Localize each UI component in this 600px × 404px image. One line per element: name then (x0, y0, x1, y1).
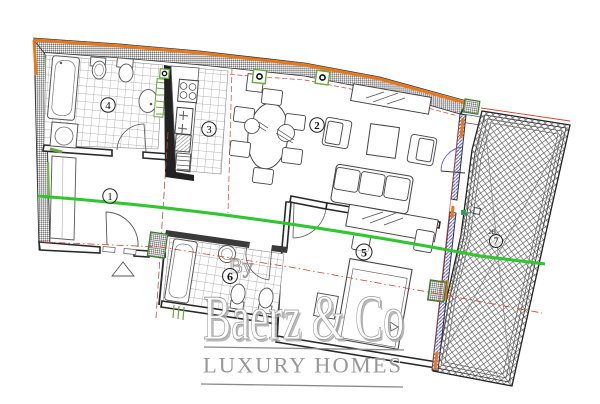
svg-text:5: 5 (361, 245, 367, 259)
svg-text:2: 2 (314, 120, 320, 132)
svg-text:LUXURY HOMES: LUXURY HOMES (203, 353, 403, 378)
svg-text:1: 1 (107, 191, 113, 203)
svg-text:6: 6 (227, 269, 233, 283)
svg-text:3: 3 (206, 124, 212, 136)
svg-text:7: 7 (494, 237, 499, 248)
svg-text:Baerz & Co: Baerz & Co (203, 282, 404, 353)
svg-text:4: 4 (105, 100, 111, 112)
